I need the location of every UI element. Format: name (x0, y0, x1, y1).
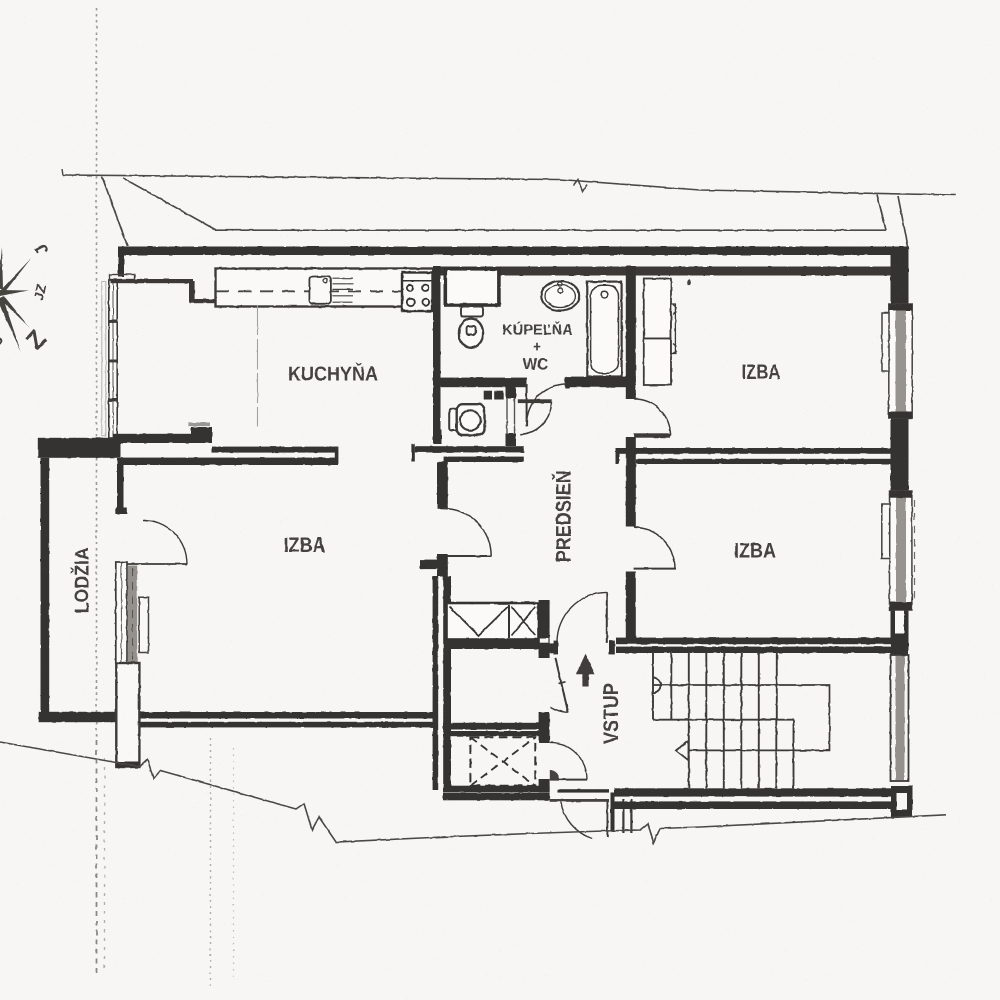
svg-text:+: + (533, 339, 542, 356)
svg-text:PREDSIEŇ: PREDSIEŇ (552, 470, 576, 562)
svg-text:JZ: JZ (31, 283, 49, 302)
svg-text:IZBA: IZBA (742, 361, 781, 384)
svg-text:IZBA: IZBA (284, 534, 326, 557)
svg-text:KÚPEĽŇA: KÚPEĽŇA (502, 322, 574, 339)
svg-text:KUCHYŇA: KUCHYŇA (288, 363, 378, 386)
svg-text:VSTUP: VSTUP (600, 683, 623, 744)
svg-text:LODŽIA: LODŽIA (71, 547, 94, 613)
svg-text:WC: WC (523, 356, 549, 374)
svg-text:IZBA: IZBA (734, 540, 776, 563)
